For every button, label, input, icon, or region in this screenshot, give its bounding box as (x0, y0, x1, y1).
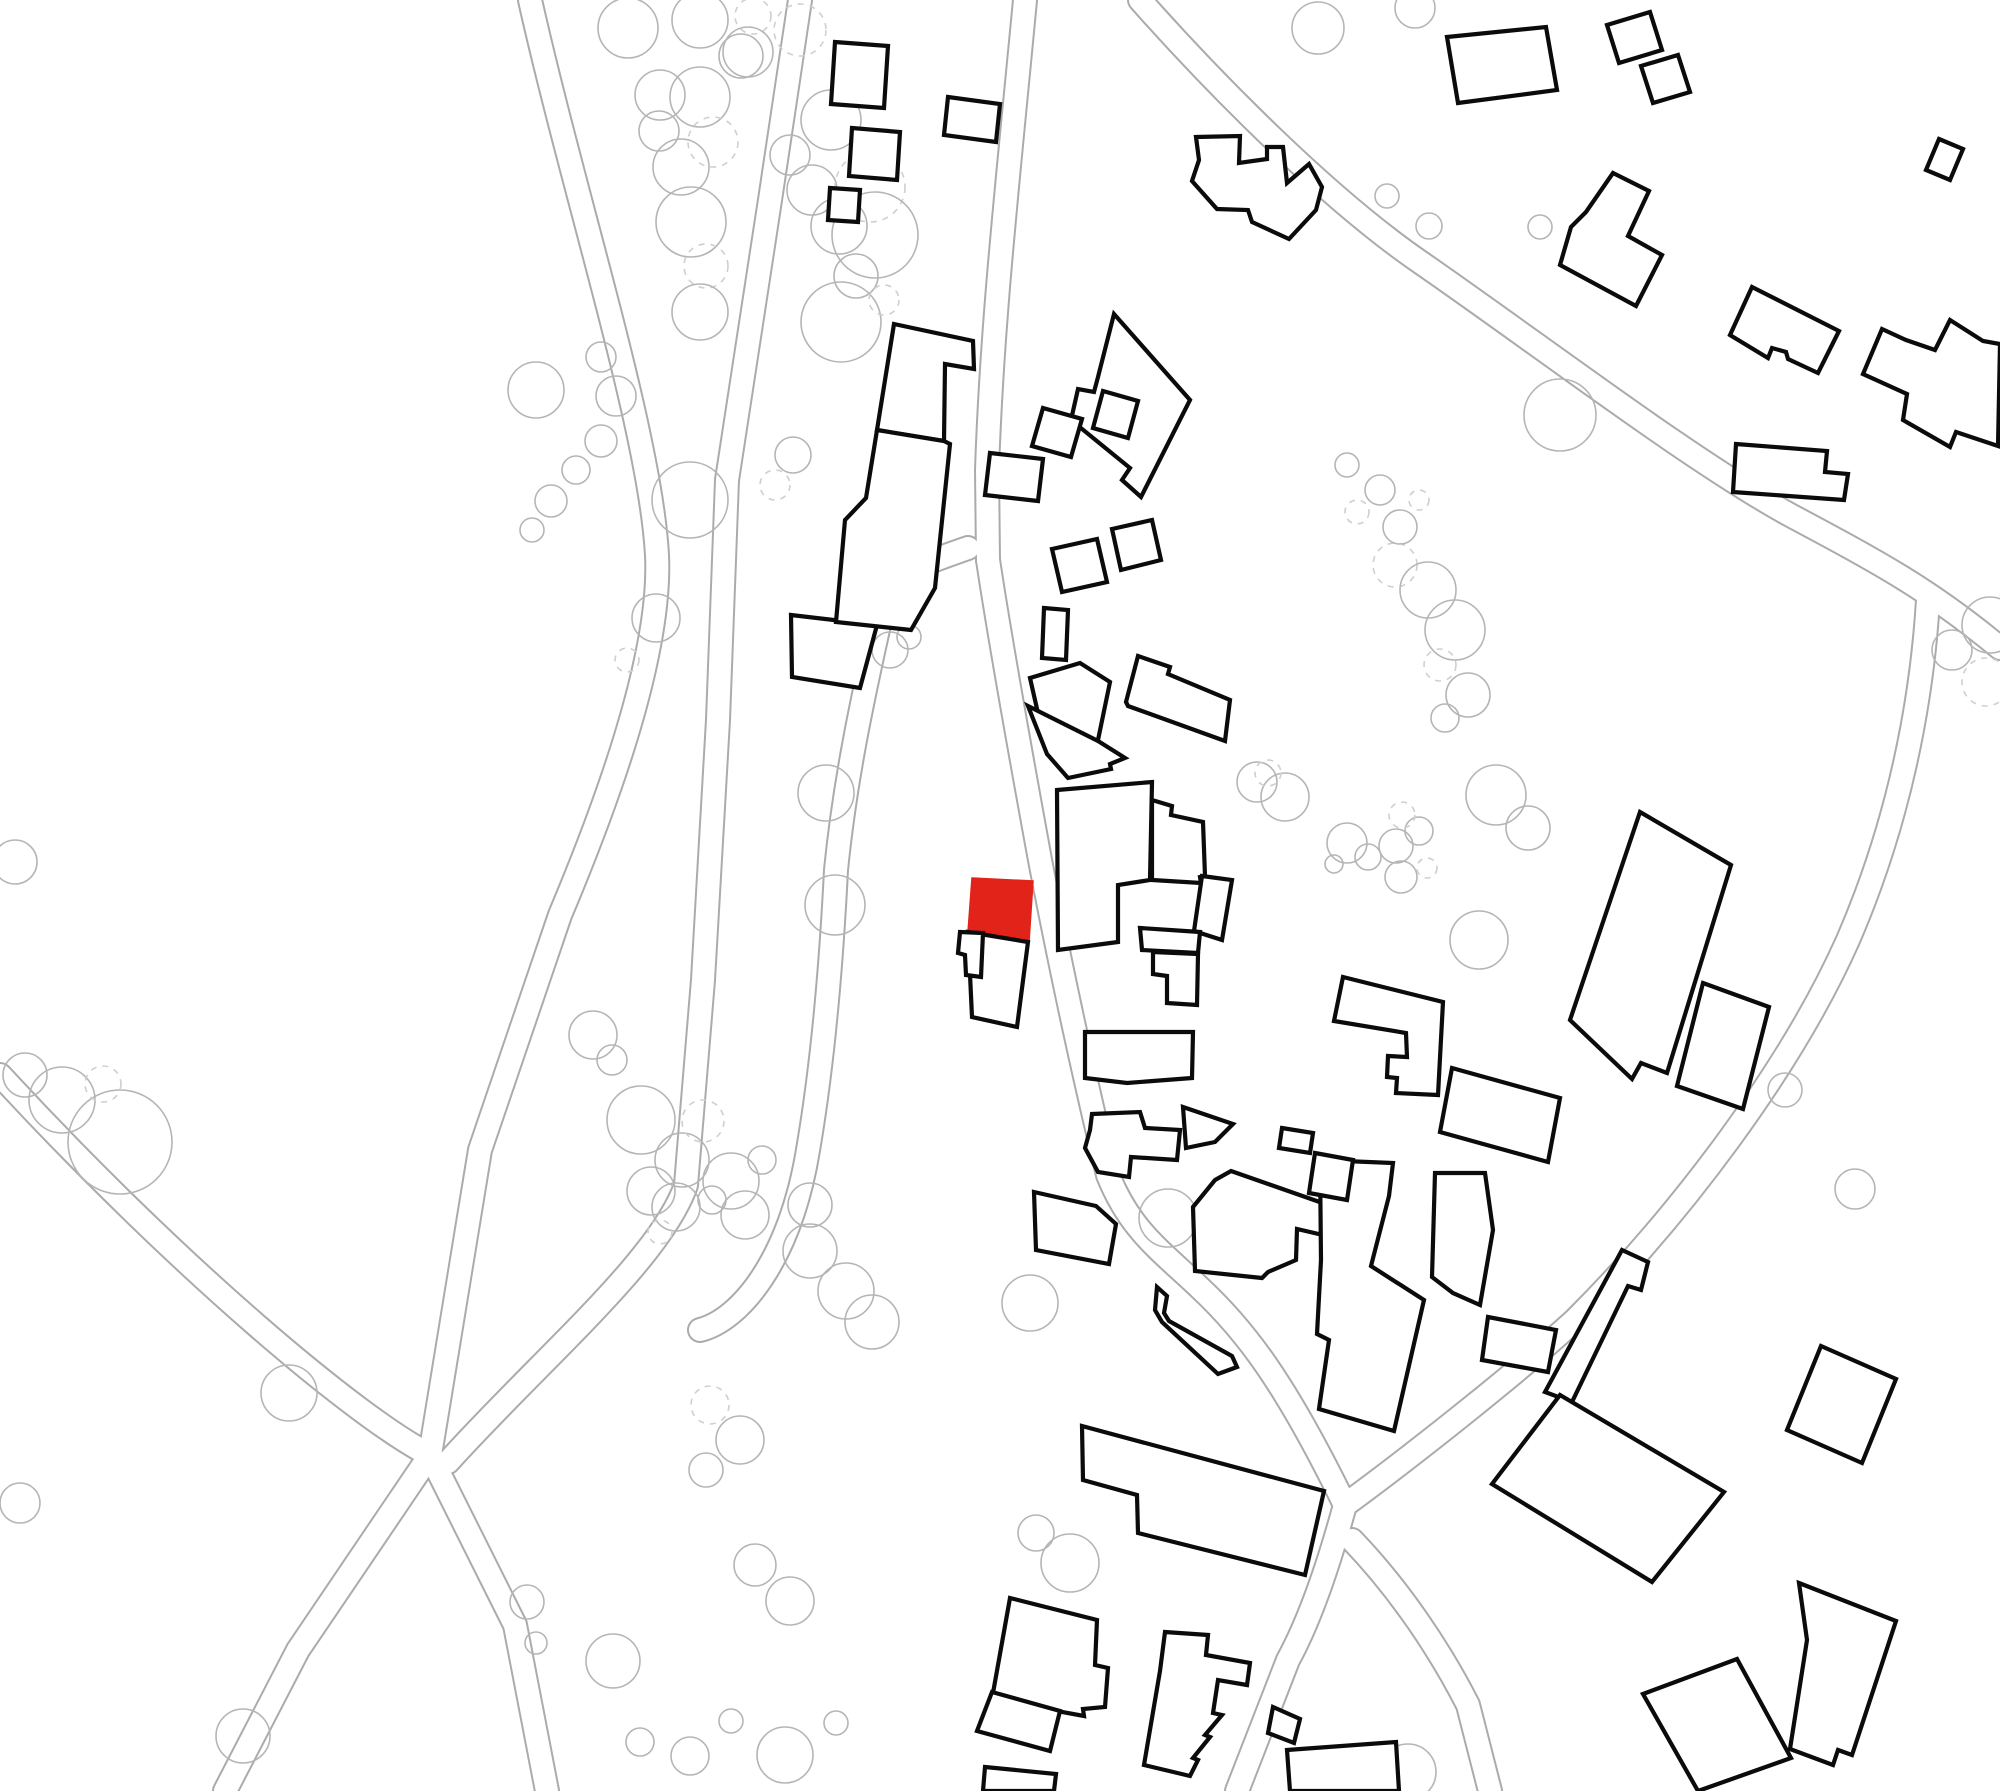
building-long-house (1334, 977, 1443, 1095)
building-big-south (1082, 1426, 1324, 1575)
building-center-tall-lower (836, 430, 950, 630)
building-small-vert-rect (1042, 608, 1068, 660)
tree (626, 1728, 654, 1756)
tree-dashed (1417, 858, 1437, 878)
tree (1139, 1189, 1197, 1247)
building-long-rect-ne (1447, 27, 1557, 103)
building-bottom-se (1790, 1583, 1896, 1765)
building-step-east (1733, 444, 1848, 500)
building-bottom-stepped (1144, 1632, 1250, 1776)
tree (627, 1167, 675, 1215)
tree (261, 1365, 317, 1421)
tree (569, 1011, 617, 1059)
tree (562, 456, 590, 484)
building-pair-sq-2 (1641, 55, 1690, 103)
tree (0, 1483, 40, 1523)
tree (1002, 1275, 1058, 1331)
tree (1041, 1534, 1099, 1592)
tree (748, 1146, 776, 1174)
site-plan-map (0, 0, 2000, 1791)
building-east-low-wide (1085, 1032, 1193, 1083)
tree (1375, 184, 1399, 208)
tree (1405, 817, 1433, 845)
building-annex-west (958, 932, 983, 977)
tree (1506, 806, 1550, 850)
tree (1932, 630, 1972, 670)
tree (801, 282, 881, 362)
tree (1524, 379, 1596, 451)
tree-dashed (1373, 543, 1417, 587)
tree-dashed (1962, 658, 2000, 706)
tree (68, 1090, 172, 1194)
building-north-small (944, 97, 1000, 142)
building-rot-square-se (1787, 1346, 1896, 1463)
tree-dashed (1424, 649, 1456, 681)
building-small-sq-b (1093, 391, 1138, 438)
building-corner-small (1926, 139, 1963, 180)
building-l-base (1492, 1395, 1724, 1582)
tree (698, 1186, 726, 1214)
building-small-sq-a (1032, 408, 1082, 457)
site-plan-svg (0, 0, 2000, 1791)
tree (585, 425, 617, 457)
tree-dashed (691, 1386, 729, 1424)
tree (520, 518, 544, 542)
building-small-quad-s (1309, 1153, 1353, 1200)
tree (0, 840, 37, 884)
building-house-ne-center (1730, 287, 1839, 373)
building-center-tall-upper (877, 324, 974, 441)
tree (1835, 1169, 1875, 1209)
tree (757, 1727, 813, 1783)
building-bottom-bit (1268, 1707, 1300, 1743)
tree-dashed (1409, 490, 1429, 510)
tree (1466, 765, 1526, 825)
building-small-tri (1183, 1107, 1233, 1148)
tree (1528, 215, 1552, 239)
building-small-sq-c (985, 453, 1043, 501)
tree-dashed (1345, 500, 1369, 524)
tree (671, 1737, 709, 1775)
building-stepped-house-ne (1560, 173, 1662, 306)
building-cluster-k (1482, 1317, 1556, 1372)
building-small-sq-d (1052, 539, 1107, 592)
tree (734, 1544, 776, 1586)
building-sq-top-1 (831, 42, 888, 108)
tree (716, 1416, 764, 1464)
tree (721, 1191, 769, 1239)
tree (672, 0, 728, 48)
building-small-sq-e (1112, 520, 1161, 570)
building-east-mid-rect (1140, 928, 1200, 953)
tree (1237, 762, 1277, 802)
tree-dashed (1389, 802, 1415, 828)
building-bottom-right-clip (1287, 1742, 1399, 1791)
tree (607, 1086, 675, 1154)
tree (508, 362, 564, 418)
tree (1416, 213, 1442, 239)
building-east-mid-step (1153, 952, 1198, 1005)
building-small-rect-s (1279, 1128, 1313, 1153)
tree (1379, 829, 1413, 863)
road-top-diagonal (1140, 0, 2000, 648)
building-bottom-tilt (1643, 1659, 1791, 1791)
tree (1425, 600, 1485, 660)
tree (1446, 673, 1490, 717)
tree (719, 1709, 743, 1733)
tree (775, 437, 811, 473)
tree (653, 139, 709, 195)
tree (598, 0, 658, 58)
tree (703, 1153, 759, 1209)
building-cluster-h2 (1317, 1160, 1424, 1431)
building-east-block-1 (1057, 782, 1152, 950)
tree (1395, 0, 1435, 28)
building-sq-top-3 (828, 188, 860, 222)
building-pair-sq-1 (1607, 12, 1662, 63)
tree (1261, 773, 1309, 821)
tree (639, 111, 679, 151)
tree-dashed (684, 244, 728, 288)
building-east-block-2 (1152, 800, 1205, 883)
tree (1383, 510, 1417, 544)
buildings-layer (791, 12, 2000, 1791)
building-cluster-h3 (1432, 1173, 1493, 1305)
tree (586, 1634, 640, 1688)
tree (1400, 562, 1456, 618)
tree (1335, 453, 1359, 477)
tree (1450, 911, 1508, 969)
tree (1018, 1515, 1054, 1551)
building-long-house-se (1440, 1068, 1560, 1162)
tree (766, 1577, 814, 1625)
tree (672, 284, 728, 340)
tree (1292, 2, 1344, 54)
tree-dashed (760, 470, 790, 500)
building-gable-house-east (1863, 320, 2000, 447)
tree (689, 1453, 723, 1487)
tree (824, 1711, 848, 1735)
tree (818, 1263, 874, 1319)
tree (1355, 844, 1381, 870)
building-trapezoid (1034, 1192, 1116, 1264)
building-stepped-mid-ne (1126, 656, 1230, 741)
tree (1365, 475, 1395, 505)
road-west-main (225, 0, 657, 1791)
tree (1327, 823, 1367, 863)
tree (535, 485, 567, 517)
building-bottom-u3 (983, 1767, 1056, 1791)
road-west-branch-se (430, 1455, 547, 1791)
building-stepped-south (1085, 1112, 1180, 1177)
building-sq-top-2 (849, 128, 900, 180)
tree (1431, 704, 1459, 732)
tree (1385, 861, 1417, 893)
